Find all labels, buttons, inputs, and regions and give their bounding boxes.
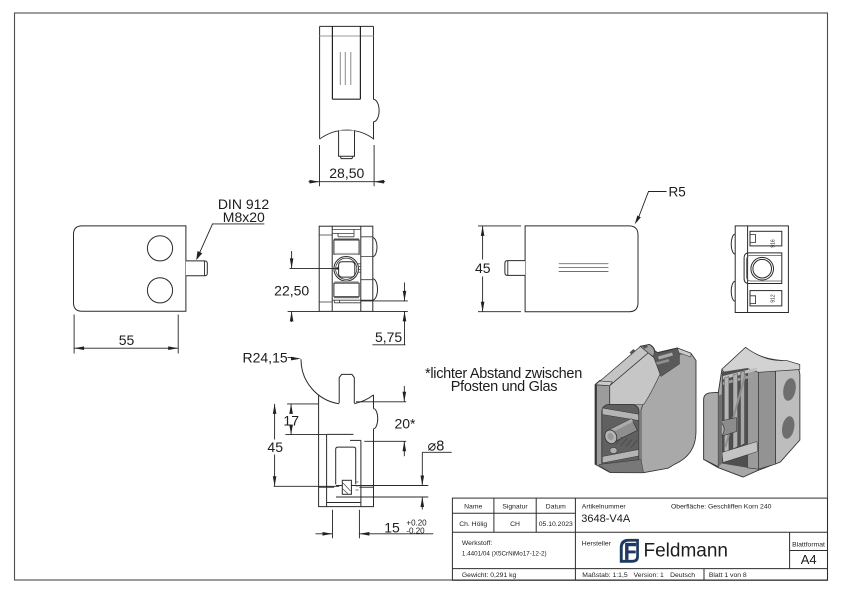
svg-text:15: 15 [384, 519, 400, 535]
svg-text:3648-V4A: 3648-V4A [581, 513, 631, 525]
svg-text:A4: A4 [801, 552, 817, 567]
svg-text:916: 916 [771, 239, 777, 248]
svg-text:Version: 1: Version: 1 [634, 572, 664, 579]
svg-text:05.10.2023: 05.10.2023 [539, 521, 573, 528]
svg-text:45: 45 [267, 439, 283, 455]
svg-text:20*: 20* [394, 415, 416, 431]
svg-text:R24,15: R24,15 [243, 350, 288, 366]
svg-text:CH: CH [510, 521, 520, 528]
svg-text:⌀8: ⌀8 [428, 438, 445, 454]
svg-text:Werkstoff:: Werkstoff: [462, 540, 492, 547]
svg-text:55: 55 [119, 332, 135, 348]
svg-text:-0.20: -0.20 [406, 526, 425, 535]
svg-text:28,50: 28,50 [329, 165, 364, 181]
svg-text:R5: R5 [669, 184, 686, 199]
svg-text:Deutsch: Deutsch [670, 572, 695, 579]
svg-text:Blattformat: Blattformat [792, 541, 825, 548]
svg-text:Maßstab: 1:1,5: Maßstab: 1:1,5 [582, 572, 628, 579]
svg-text:5,75: 5,75 [375, 329, 402, 345]
svg-text:Datum: Datum [546, 503, 566, 510]
svg-text:17: 17 [283, 412, 299, 428]
svg-text:Ch. Hölig: Ch. Hölig [459, 521, 487, 528]
svg-text:Pfosten und Glas: Pfosten und Glas [451, 379, 557, 395]
svg-text:1.4401/04 (X5CrNiMo17-12-2): 1.4401/04 (X5CrNiMo17-12-2) [462, 550, 547, 557]
svg-text:912: 912 [771, 294, 777, 303]
svg-text:Hersteller: Hersteller [582, 540, 612, 547]
svg-text:22,50: 22,50 [274, 282, 309, 298]
svg-text:Artikelnummer: Artikelnummer [582, 503, 627, 510]
svg-text:Oberfläche: Geschliffen Korn: Oberfläche: Geschliffen Korn 240 [671, 503, 772, 510]
svg-text:Blatt 1 von 8: Blatt 1 von 8 [709, 572, 747, 579]
svg-text:Signatur: Signatur [502, 503, 528, 510]
svg-text:45: 45 [475, 260, 491, 276]
svg-text:Name: Name [464, 503, 482, 510]
svg-text:M8x20: M8x20 [223, 209, 265, 225]
svg-text:Gewicht: 0,291 kg: Gewicht: 0,291 kg [462, 572, 517, 579]
svg-text:Feldmann: Feldmann [644, 541, 729, 562]
